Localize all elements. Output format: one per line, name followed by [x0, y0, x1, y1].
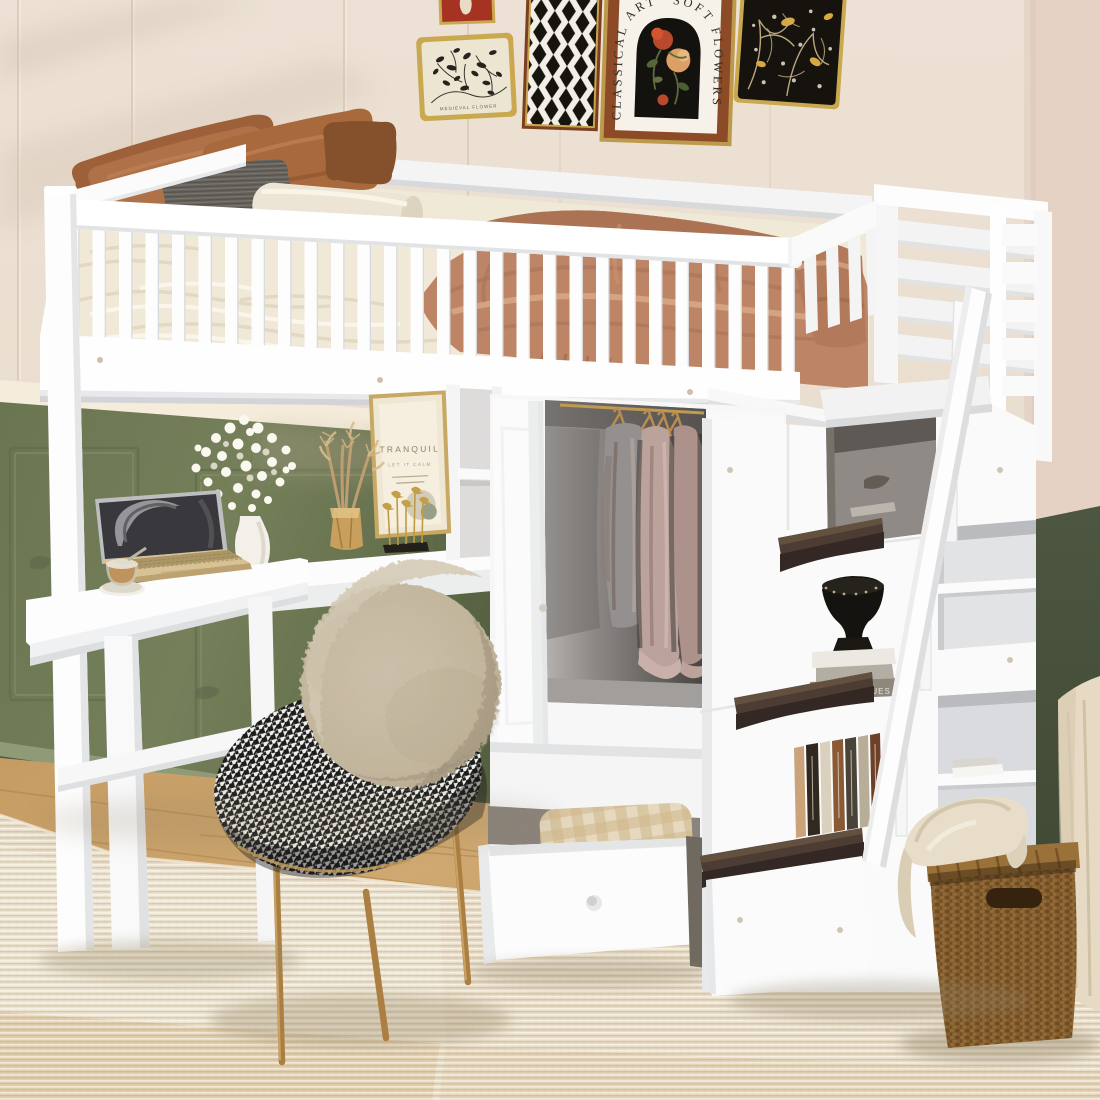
svg-text:TRANQUIL: TRANQUIL — [379, 443, 440, 454]
svg-text:LET IT CALM: LET IT CALM — [388, 462, 432, 468]
